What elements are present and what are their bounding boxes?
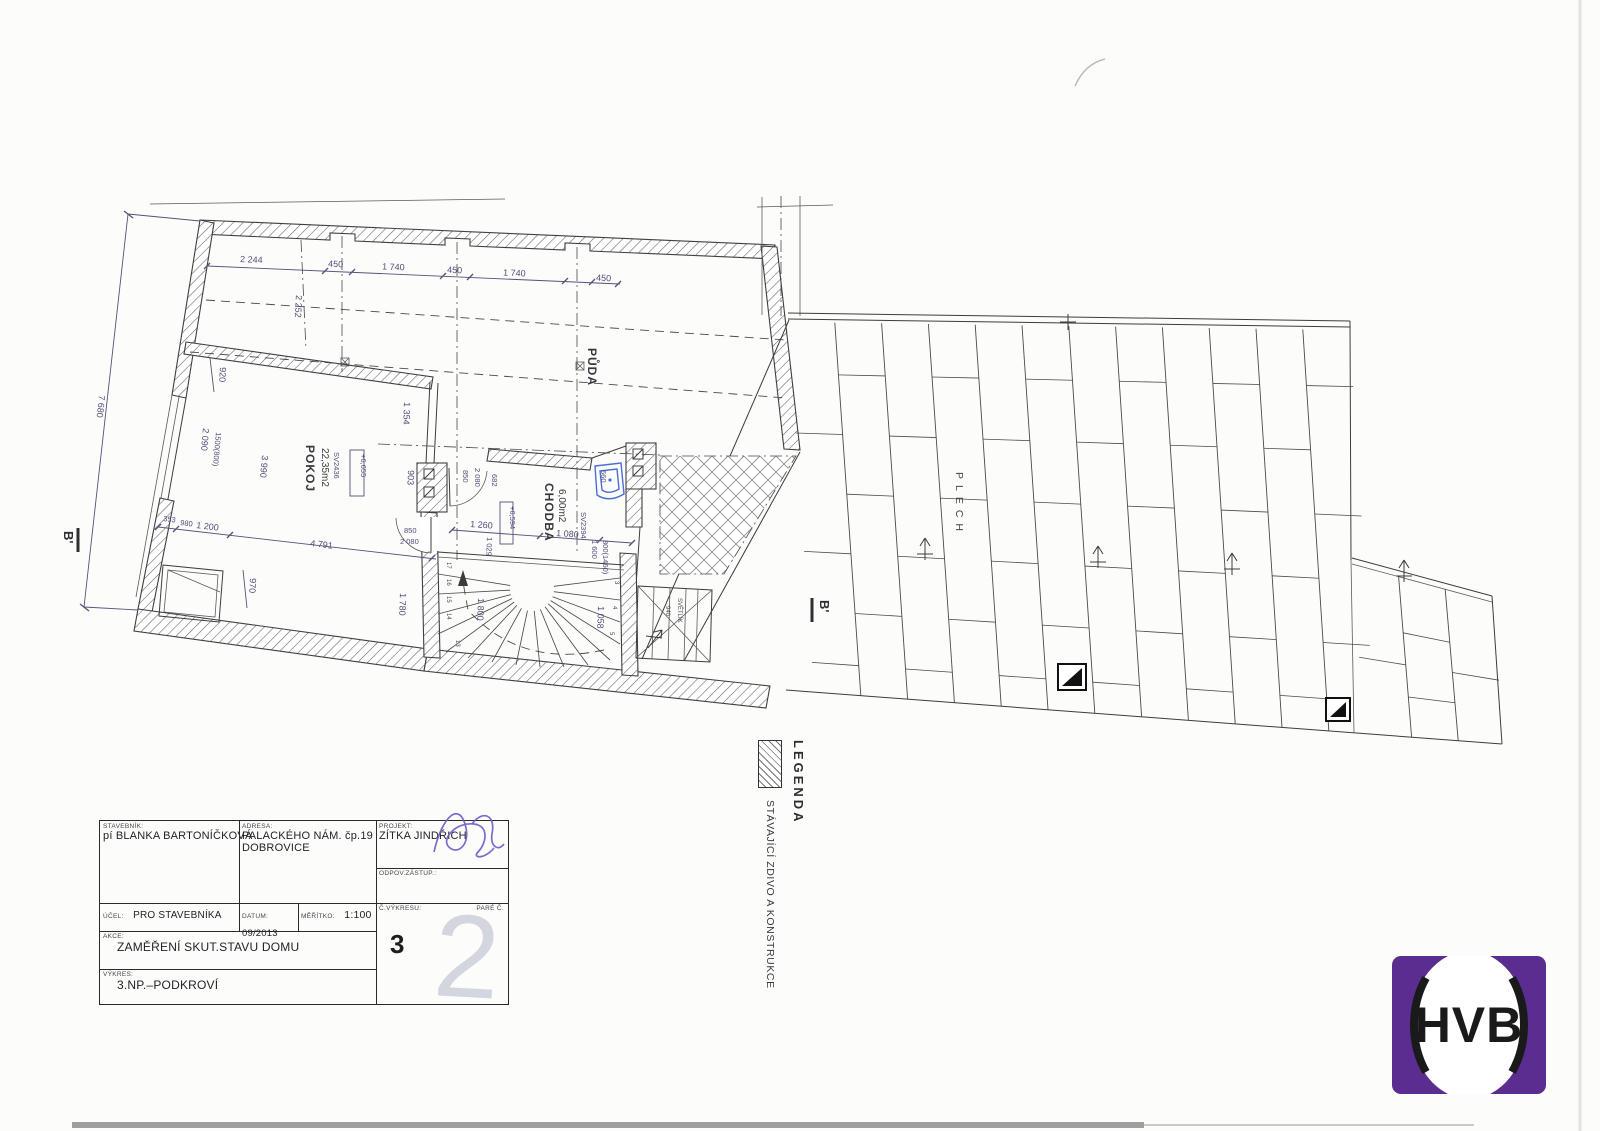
dim: 980 (180, 518, 194, 528)
field-value: pí BLANKA BARTONÍČKOVÁ (103, 830, 236, 842)
skylight-box (636, 586, 712, 662)
field-value: PRO STAVEBNÍKA (133, 910, 222, 921)
room-area-chodba: 6,00m2 (556, 489, 567, 523)
room-label-puda: PŮDA (585, 348, 601, 386)
stair-number: 14 (445, 613, 451, 620)
dim: 2 080 (473, 468, 482, 487)
dim: 1 260 (470, 519, 493, 531)
dim: 1 740 (503, 267, 526, 278)
dim: 903 (405, 470, 416, 485)
dim: 1 600 (590, 540, 599, 559)
level-label: +6,655 (359, 454, 368, 477)
dim: 7 680 (95, 395, 107, 418)
dim: 1500(800) (211, 432, 223, 467)
field-value: 3.NP.–PODKROVÍ (117, 978, 373, 992)
stair-number: 17 (445, 562, 451, 569)
stair-number: 5 (608, 632, 614, 636)
level-label: +6,594 (508, 506, 517, 529)
field-label: MĚŘÍTKO: (301, 913, 335, 920)
dim: 1 058 (595, 606, 606, 629)
attic-lines (190, 196, 833, 661)
dim: 1 029 (484, 537, 494, 556)
legend-title: LEGENDA (791, 740, 806, 825)
dim: 450 (447, 265, 462, 276)
dim: 682 (490, 474, 499, 487)
roof-material-label: PLECH (953, 472, 965, 537)
field-label: VÝKRES: (103, 971, 373, 978)
skylight-label: SVĚTLÍK (676, 598, 684, 623)
legend-item-existing-walls: STÁVAJÍCÍ ZDIVO A KONSTRUKCE (764, 800, 776, 989)
field-label: DATUM: (242, 913, 268, 920)
dim: 1 740 (382, 261, 405, 272)
field-label: AKCE: (103, 933, 373, 940)
stair-number: 16 (445, 579, 451, 586)
cell-ucel: ÚČEL: PRO STAVEBNÍKA (100, 903, 239, 931)
dim: 450 (596, 273, 611, 284)
signature (420, 794, 520, 879)
axis-mark (341, 358, 584, 370)
field-value: 1:100 (344, 909, 371, 921)
dim: 920 (217, 367, 228, 383)
skylight-size: 940 (664, 606, 670, 617)
dim: 660 (599, 470, 608, 483)
legend-swatch-hatch (758, 740, 782, 788)
dim: 850 (404, 526, 417, 535)
section-marker-b-roof: B' (817, 600, 832, 612)
plan-labels: PŮDA POKOJ 22,35m2 CHODBA 6,00m2 PLECH 2… (95, 254, 965, 647)
drawing-number: 3 (390, 929, 404, 960)
section-marker-b-left: B' (61, 531, 76, 543)
dim: 353 (163, 514, 177, 524)
dim: 450 (328, 259, 343, 270)
room-area-pokoj: 22,35m2 (319, 448, 330, 487)
cell-adresa: ADRESA: PALACKÉHO NÁM. čp.19 DOBROVICE (239, 821, 376, 903)
scan-edge-line (1144, 1124, 1474, 1126)
dim: 4 791 (310, 538, 334, 551)
stair-number: 4 (611, 606, 617, 610)
dim: 1 780 (397, 593, 408, 616)
cell-meritko: MĚŘÍTKO: 1:100 (298, 903, 376, 931)
dim: 1 800 (475, 598, 486, 621)
cell-akce: AKCE: ZAMĚŘENÍ SKUT.STAVU DOMU (100, 931, 376, 969)
dim: 2 080 (400, 537, 419, 546)
cell-vykres: VÝKRES: 3.NP.–PODKROVÍ (100, 969, 376, 1004)
field-value: PALACKÉHO NÁM. čp.19 (242, 830, 373, 842)
dim: 970 (247, 578, 258, 594)
hvb-logo: HVB (1392, 956, 1546, 1094)
room-label-chodba: CHODBA (542, 483, 556, 542)
stair-number: 13 (454, 640, 460, 647)
cell-cislo-vykresu: Č.VÝKRESU: PARÉ Č. 3 2 (376, 903, 508, 1004)
roof-window (1058, 664, 1350, 721)
roof (786, 313, 1502, 744)
dim: 1 200 (196, 520, 220, 533)
pare-stamp-number: 2 (430, 887, 503, 1026)
room-label-pokoj: POKOJ (303, 445, 317, 492)
dim: 1 080 (556, 528, 579, 540)
walkline-arrow (458, 570, 468, 586)
dim: 1 354 (401, 402, 412, 425)
stair-number: 15 (445, 596, 451, 603)
dim: 2 090 (199, 428, 211, 451)
window-code: SV2436 (332, 452, 341, 479)
dim: 2 244 (240, 254, 263, 265)
scanned-drawing-sheet: B' B' PŮDA POKOJ 22,35m2 CHODBA 6,00m2 P… (0, 0, 1600, 1131)
cell-stavebnik: STAVEBNÍK: pí BLANKA BARTONÍČKOVÁ (100, 821, 239, 903)
field-value: ZAMĚŘENÍ SKUT.STAVU DOMU (117, 940, 373, 954)
field-value: DOBROVICE (242, 842, 373, 854)
hvb-logo-text: HVB (1415, 997, 1524, 1053)
field-label: STAVEBNÍK: (103, 823, 236, 830)
dim: 800(1460) (601, 540, 610, 575)
window-code: SV2394 (579, 512, 588, 539)
dim: 2 252 (293, 295, 304, 318)
field-label: ÚČEL: (103, 913, 124, 920)
stair-number: 3 (613, 581, 619, 585)
dim: 3 990 (258, 455, 270, 478)
cell-datum: DATUM: 09/2013 (239, 903, 298, 931)
scan-edge-bar (72, 1122, 1144, 1128)
field-label: ADRESA: (242, 823, 373, 830)
dim: 850 (461, 470, 470, 483)
